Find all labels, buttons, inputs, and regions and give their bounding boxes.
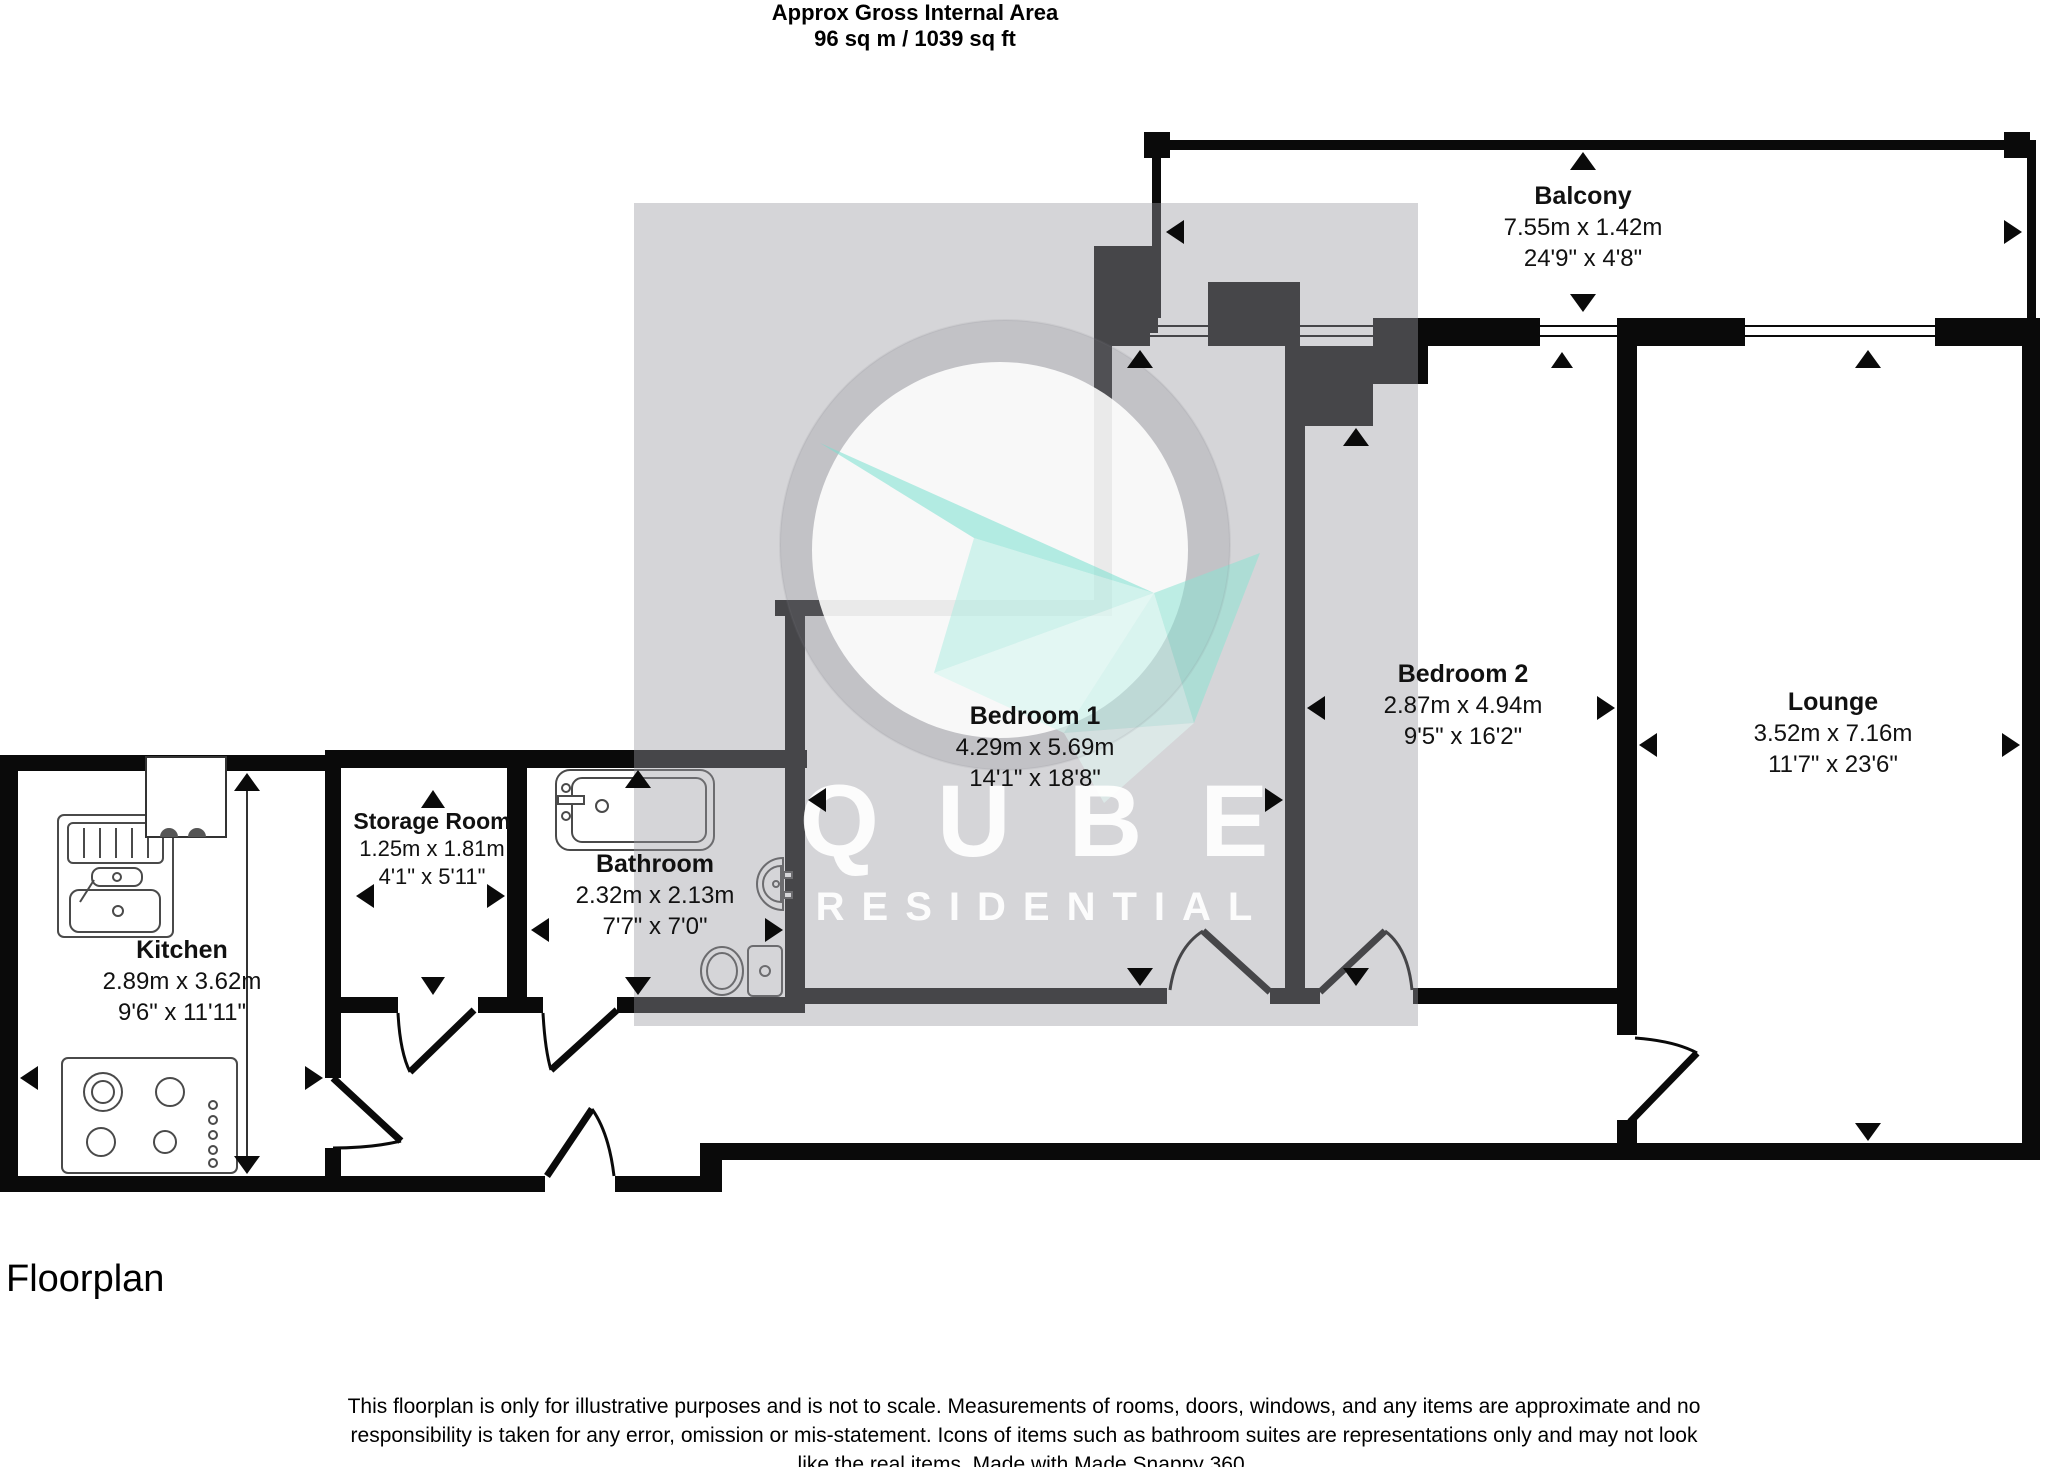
room-name: Balcony: [1433, 180, 1733, 212]
room-dim-imperial: 9'6" x 11'11": [32, 997, 332, 1028]
arrow-left-icon: [20, 1066, 38, 1090]
arrow-up-icon: [1551, 352, 1573, 368]
room-name: Bathroom: [505, 848, 805, 880]
room-dim-imperial: 4'1" x 5'11": [347, 863, 517, 891]
room-name: Bedroom 1: [885, 700, 1185, 732]
title-line2: 96 sq m / 1039 sq ft: [515, 26, 1315, 52]
arrow-up-icon: [1855, 350, 1881, 368]
title-line1: Approx Gross Internal Area: [515, 0, 1315, 26]
room-dim-metric: 2.89m x 3.62m: [32, 966, 332, 997]
room-label-storage: Storage Room 1.25m x 1.81m 4'1" x 5'11": [347, 808, 517, 891]
arrow-down-icon: [625, 977, 651, 995]
room-label-bedroom1: Bedroom 1 4.29m x 5.69m 14'1" x 18'8": [885, 700, 1185, 794]
arrow-down-icon: [234, 1156, 260, 1174]
section-label: Floorplan: [6, 1258, 164, 1301]
room-label-bedroom2: Bedroom 2 2.87m x 4.94m 9'5" x 16'2": [1313, 658, 1613, 752]
room-label-lounge: Lounge 3.52m x 7.16m 11'7" x 23'6": [1683, 686, 1983, 780]
disclaimer-text: This floorplan is only for illustrative …: [334, 1392, 1714, 1467]
arrow-up-icon: [1570, 152, 1596, 170]
floorplan-canvas: QUBE RESIDENTIAL: [0, 0, 2048, 1467]
room-dim-imperial: 11'7" x 23'6": [1683, 749, 1983, 780]
room-dim-metric: 2.32m x 2.13m: [505, 880, 805, 911]
arrow-up-icon: [1343, 428, 1369, 446]
room-dim-metric: 4.29m x 5.69m: [885, 732, 1185, 763]
room-dim-metric: 3.52m x 7.16m: [1683, 718, 1983, 749]
room-label-balcony: Balcony 7.55m x 1.42m 24'9" x 4'8": [1433, 180, 1733, 274]
arrow-down-icon: [421, 977, 445, 995]
arrow-left-icon: [1639, 733, 1657, 757]
arrow-down-icon: [1570, 294, 1596, 312]
arrow-up-icon: [1127, 350, 1153, 368]
room-name: Lounge: [1683, 686, 1983, 718]
page-title: Approx Gross Internal Area 96 sq m / 103…: [515, 0, 1315, 52]
room-dim-imperial: 7'7" x 7'0": [505, 911, 805, 942]
arrow-left-icon: [1166, 220, 1184, 244]
room-name: Bedroom 2: [1313, 658, 1613, 690]
room-dim-imperial: 9'5" x 16'2": [1313, 721, 1613, 752]
room-label-kitchen: Kitchen 2.89m x 3.62m 9'6" x 11'11": [32, 934, 332, 1028]
arrow-right-icon: [1265, 788, 1283, 812]
arrow-left-icon: [808, 788, 826, 812]
arrow-right-icon: [2004, 220, 2022, 244]
room-dim-imperial: 14'1" x 18'8": [885, 763, 1185, 794]
arrow-down-icon: [1343, 968, 1369, 986]
arrow-down-icon: [1855, 1123, 1881, 1141]
room-dim-metric: 1.25m x 1.81m: [347, 835, 517, 863]
arrow-down-icon: [1127, 968, 1153, 986]
arrow-up-icon: [421, 790, 445, 808]
room-name: Storage Room: [347, 808, 517, 835]
room-dim-metric: 7.55m x 1.42m: [1433, 212, 1733, 243]
arrow-up-icon: [625, 770, 651, 788]
room-name: Kitchen: [32, 934, 332, 966]
arrow-right-icon: [305, 1066, 323, 1090]
arrow-up-icon: [234, 773, 260, 791]
arrow-right-icon: [2002, 733, 2020, 757]
room-dim-metric: 2.87m x 4.94m: [1313, 690, 1613, 721]
room-dim-imperial: 24'9" x 4'8": [1433, 243, 1733, 274]
room-label-bathroom: Bathroom 2.32m x 2.13m 7'7" x 7'0": [505, 848, 805, 942]
